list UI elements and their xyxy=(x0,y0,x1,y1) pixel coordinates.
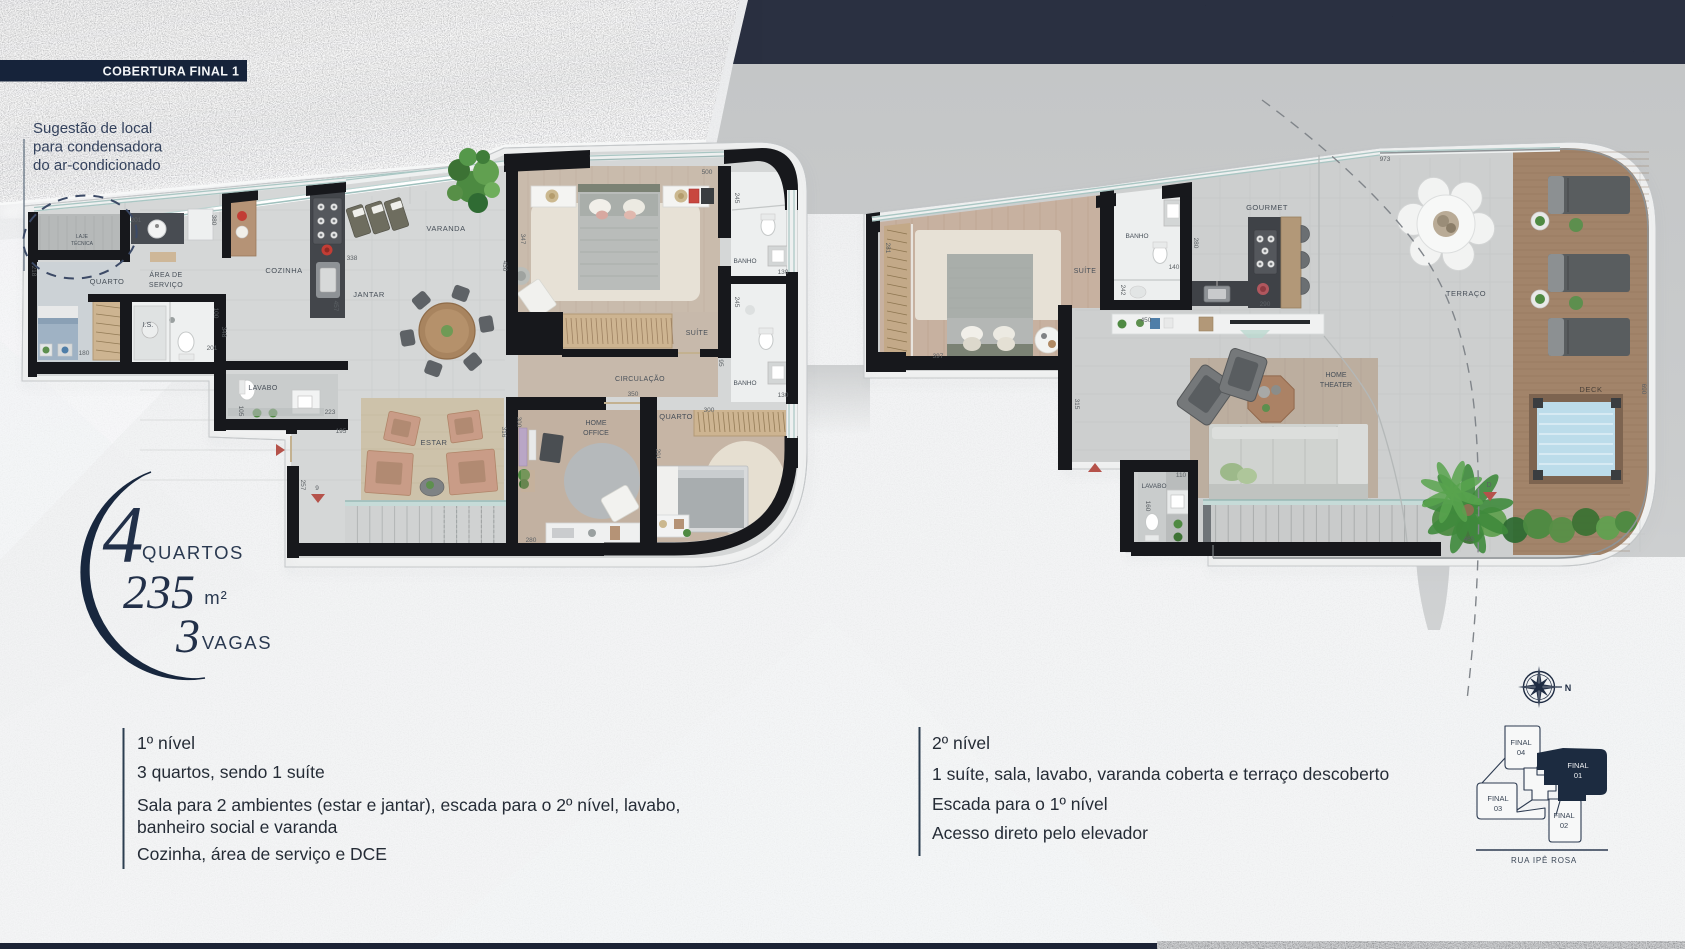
svg-text:Acesso direto pelo elevador: Acesso direto pelo elevador xyxy=(932,823,1148,843)
svg-text:LAVABO: LAVABO xyxy=(1141,483,1166,490)
svg-text:Escada para o 1º nível: Escada para o 1º nível xyxy=(932,794,1108,814)
svg-text:m²: m² xyxy=(204,587,228,608)
svg-text:SUÍTE: SUÍTE xyxy=(686,328,709,337)
svg-text:D: D xyxy=(1486,482,1491,489)
svg-text:180: 180 xyxy=(79,350,90,357)
svg-text:BANHO: BANHO xyxy=(733,380,756,387)
svg-text:245: 245 xyxy=(733,297,740,308)
svg-text:HOME: HOME xyxy=(1326,372,1347,379)
svg-text:338: 338 xyxy=(347,255,358,262)
svg-text:316: 316 xyxy=(500,427,507,438)
svg-text:348: 348 xyxy=(220,327,227,338)
svg-text:281: 281 xyxy=(884,243,891,254)
svg-text:457: 457 xyxy=(332,301,339,312)
svg-text:130: 130 xyxy=(778,269,789,276)
svg-text:280: 280 xyxy=(1192,238,1199,249)
svg-text:FINAL: FINAL xyxy=(1487,794,1508,803)
svg-text:Sugestão de local: Sugestão de local xyxy=(33,120,152,137)
svg-text:QUARTO: QUARTO xyxy=(90,277,125,286)
svg-text:245: 245 xyxy=(733,193,740,204)
svg-text:300: 300 xyxy=(704,407,715,414)
svg-text:LAJE: LAJE xyxy=(76,234,89,240)
svg-text:LAVABO: LAVABO xyxy=(248,385,278,392)
svg-text:BANHO: BANHO xyxy=(1125,233,1148,240)
svg-text:04: 04 xyxy=(1517,748,1525,757)
svg-text:242: 242 xyxy=(1119,285,1126,296)
svg-text:347: 347 xyxy=(519,234,526,245)
svg-text:9: 9 xyxy=(315,485,319,492)
svg-text:690: 690 xyxy=(1640,384,1647,395)
svg-text:TERRAÇO: TERRAÇO xyxy=(1446,289,1486,298)
svg-text:380: 380 xyxy=(210,215,217,226)
svg-text:290: 290 xyxy=(1260,301,1271,308)
svg-text:105: 105 xyxy=(237,406,244,417)
svg-text:257: 257 xyxy=(299,480,306,491)
svg-text:201: 201 xyxy=(131,217,142,224)
svg-text:350: 350 xyxy=(628,391,639,398)
svg-text:TÉCNICA: TÉCNICA xyxy=(71,240,94,247)
svg-text:3: 3 xyxy=(175,610,200,663)
svg-text:GOURMET: GOURMET xyxy=(1246,203,1288,212)
svg-text:VARANDA: VARANDA xyxy=(426,224,465,233)
svg-text:160: 160 xyxy=(1144,501,1151,512)
svg-text:COBERTURA FINAL 1: COBERTURA FINAL 1 xyxy=(103,65,240,79)
svg-text:430: 430 xyxy=(501,261,508,272)
svg-text:1 suíte, sala, lavabo, varanda: 1 suíte, sala, lavabo, varanda coberta e… xyxy=(932,764,1389,784)
svg-text:300: 300 xyxy=(515,417,522,428)
svg-text:2º nível: 2º nível xyxy=(932,733,990,753)
svg-text:VAGAS: VAGAS xyxy=(202,632,272,653)
svg-text:do ar-condicionado: do ar-condicionado xyxy=(33,157,161,174)
svg-text:banheiro social e varanda: banheiro social e varanda xyxy=(137,817,338,837)
svg-text:100: 100 xyxy=(212,308,219,319)
svg-text:3 quartos, sendo 1 suíte: 3 quartos, sendo 1 suíte xyxy=(137,762,325,782)
svg-text:110: 110 xyxy=(1176,472,1187,479)
svg-text:450: 450 xyxy=(1141,317,1152,324)
svg-text:RUA IPÊ ROSA: RUA IPÊ ROSA xyxy=(1511,856,1577,865)
svg-text:465: 465 xyxy=(1464,536,1475,543)
svg-text:03: 03 xyxy=(1494,804,1502,813)
svg-text:397: 397 xyxy=(933,353,944,360)
svg-text:para condensadora: para condensadora xyxy=(33,139,163,156)
svg-text:973: 973 xyxy=(1380,156,1391,163)
svg-text:SUÍTE: SUÍTE xyxy=(1074,266,1097,275)
svg-text:201: 201 xyxy=(207,345,218,352)
svg-text:HOME: HOME xyxy=(586,420,607,427)
svg-text:QUARTO: QUARTO xyxy=(659,412,693,421)
svg-text:140: 140 xyxy=(1169,264,1180,271)
svg-text:OFFICE: OFFICE xyxy=(583,430,609,437)
svg-text:130: 130 xyxy=(778,392,789,399)
svg-text:ESTAR: ESTAR xyxy=(421,438,448,447)
svg-text:JANTAR: JANTAR xyxy=(353,290,385,299)
svg-text:95: 95 xyxy=(717,359,724,367)
svg-text:COZINHA: COZINHA xyxy=(265,266,302,275)
svg-text:CIRCULAÇÃO: CIRCULAÇÃO xyxy=(615,374,665,383)
svg-text:ÁREA DE: ÁREA DE xyxy=(149,270,182,279)
svg-text:FINAL: FINAL xyxy=(1567,761,1588,770)
svg-text:I.S.: I.S. xyxy=(143,322,154,329)
svg-text:Sala para 2 ambientes (estar e: Sala para 2 ambientes (estar e jantar), … xyxy=(137,795,680,815)
svg-text:FINAL: FINAL xyxy=(1553,811,1574,820)
svg-text:223: 223 xyxy=(325,409,336,416)
svg-text:500: 500 xyxy=(702,169,713,176)
svg-text:Cozinha, área de serviço e DCE: Cozinha, área de serviço e DCE xyxy=(137,844,387,864)
svg-text:N: N xyxy=(1565,683,1572,693)
svg-text:291: 291 xyxy=(654,449,661,460)
svg-text:315: 315 xyxy=(1073,399,1080,410)
svg-text:1º nível: 1º nível xyxy=(137,733,195,753)
svg-text:THEATER: THEATER xyxy=(1320,382,1352,389)
svg-text:FINAL: FINAL xyxy=(1510,738,1531,747)
svg-text:QUARTOS: QUARTOS xyxy=(142,542,244,563)
svg-text:01: 01 xyxy=(1574,771,1582,780)
svg-text:BANHO: BANHO xyxy=(733,258,756,265)
svg-text:02: 02 xyxy=(1560,821,1568,830)
svg-text:280: 280 xyxy=(526,537,537,544)
svg-text:195: 195 xyxy=(336,428,347,435)
svg-text:SERVIÇO: SERVIÇO xyxy=(149,282,183,289)
svg-text:DECK: DECK xyxy=(1579,385,1602,394)
